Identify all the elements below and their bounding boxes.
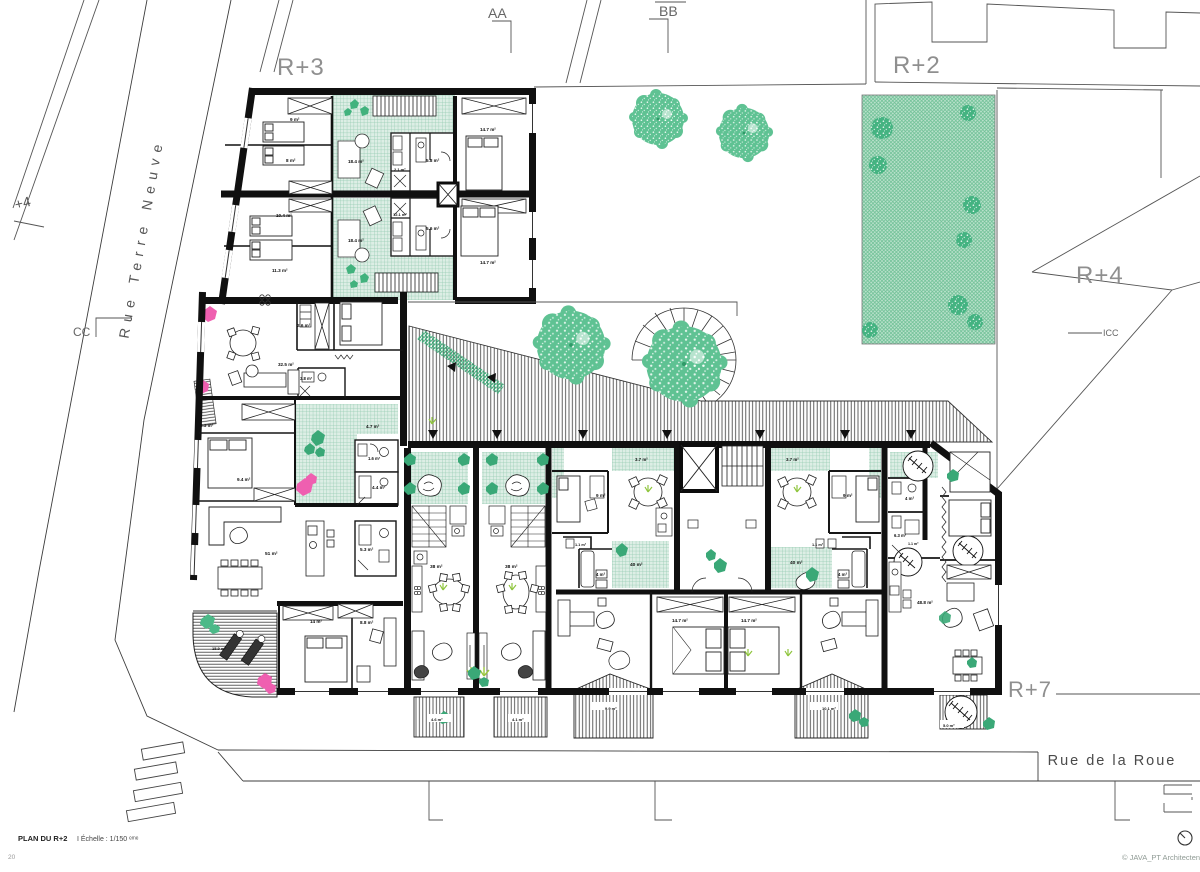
svg-text:AA: AA: [488, 5, 507, 21]
svg-text:1.6 m²: 1.6 m²: [368, 456, 381, 461]
svg-text:5.8 m²: 5.8 m²: [426, 158, 440, 163]
svg-text:9 m²: 9 m²: [843, 493, 853, 498]
svg-text:5.0 m²: 5.0 m²: [943, 723, 955, 728]
svg-text:10.4 m²: 10.4 m²: [276, 213, 292, 218]
svg-text:4 m²: 4 m²: [596, 572, 606, 577]
svg-text:40 m²: 40 m²: [630, 562, 643, 568]
svg-text:R+4: R+4: [1076, 262, 1124, 289]
svg-text:3.7 m²: 3.7 m²: [635, 457, 648, 462]
svg-text:1.1 m²: 1.1 m²: [812, 543, 824, 547]
svg-text:11.3 m²: 11.3 m²: [272, 268, 288, 273]
svg-text:14.7 m²: 14.7 m²: [741, 618, 757, 623]
svg-text:15.9 m²: 15.9 m²: [212, 646, 226, 651]
svg-text:3.7 m²: 3.7 m²: [786, 457, 799, 462]
svg-text:4.7 m²: 4.7 m²: [366, 424, 380, 429]
svg-text:4.4 m²: 4.4 m²: [372, 485, 386, 490]
svg-text:32.5 m²: 32.5 m²: [278, 362, 294, 367]
svg-text:8.8 m²: 8.8 m²: [360, 620, 374, 625]
svg-text:3.8 m²: 3.8 m²: [300, 376, 313, 381]
svg-text:BB: BB: [659, 3, 678, 19]
svg-text:5.3 m²: 5.3 m²: [360, 547, 374, 552]
svg-text:14.7 m²: 14.7 m²: [480, 260, 496, 265]
svg-text:8 m²: 8 m²: [286, 158, 296, 163]
svg-text:4.6 m²: 4.6 m²: [431, 717, 443, 722]
svg-text:4.1 m²: 4.1 m²: [512, 717, 524, 722]
svg-text:8.3 m²: 8.3 m²: [200, 423, 214, 428]
svg-text:20: 20: [8, 854, 16, 861]
svg-text:12.1 m²: 12.1 m²: [393, 212, 407, 217]
svg-text:R+3: R+3: [277, 54, 325, 81]
svg-text:14.7 m²: 14.7 m²: [672, 618, 688, 623]
svg-text:48.8 m²: 48.8 m²: [917, 600, 933, 605]
svg-text:38 m²: 38 m²: [430, 564, 443, 570]
svg-text:1.1 m²: 1.1 m²: [575, 543, 587, 547]
svg-text:9.9 m²: 9.9 m²: [605, 706, 617, 711]
svg-text:CC: CC: [73, 325, 91, 339]
svg-text:R+2: R+2: [893, 52, 941, 79]
svg-text:14.7 m²: 14.7 m²: [480, 127, 496, 132]
svg-text:10.1 m²: 10.1 m²: [822, 706, 836, 711]
svg-text:14 m²: 14 m²: [310, 619, 322, 624]
svg-text:40 m²: 40 m²: [790, 560, 803, 566]
svg-text:4 m²: 4 m²: [838, 572, 848, 577]
svg-text:Rue de la Roue: Rue de la Roue: [1048, 753, 1177, 769]
svg-text:6.3 m²: 6.3 m²: [894, 533, 907, 538]
svg-text:2.1 m²: 2.1 m²: [394, 167, 406, 172]
svg-text:4 m²: 4 m²: [905, 496, 915, 501]
svg-text:PLAN DU R+2: PLAN DU R+2: [18, 834, 67, 843]
svg-text:18.4 m²: 18.4 m²: [348, 159, 364, 164]
svg-text:9.4 m²: 9.4 m²: [237, 477, 251, 482]
svg-text:5.6 m²: 5.6 m²: [426, 226, 440, 231]
svg-text:1.1 m²: 1.1 m²: [908, 542, 919, 546]
svg-text:© JAVA_PT Architecten: © JAVA_PT Architecten: [1122, 853, 1200, 862]
svg-text:38 m²: 38 m²: [505, 564, 518, 570]
svg-text:ICC: ICC: [1103, 328, 1119, 338]
svg-text:18.4 m²: 18.4 m²: [348, 238, 364, 243]
svg-text:I Échelle : 1/150 ᵉᵐᵉ: I Échelle : 1/150 ᵉᵐᵉ: [77, 834, 139, 843]
svg-text:9 m²: 9 m²: [290, 117, 300, 122]
svg-text:9 m²: 9 m²: [596, 493, 606, 498]
svg-text:51 m²: 51 m²: [265, 551, 278, 557]
svg-text:2.6 m²: 2.6 m²: [297, 323, 311, 328]
svg-text:R+7: R+7: [1008, 677, 1052, 702]
